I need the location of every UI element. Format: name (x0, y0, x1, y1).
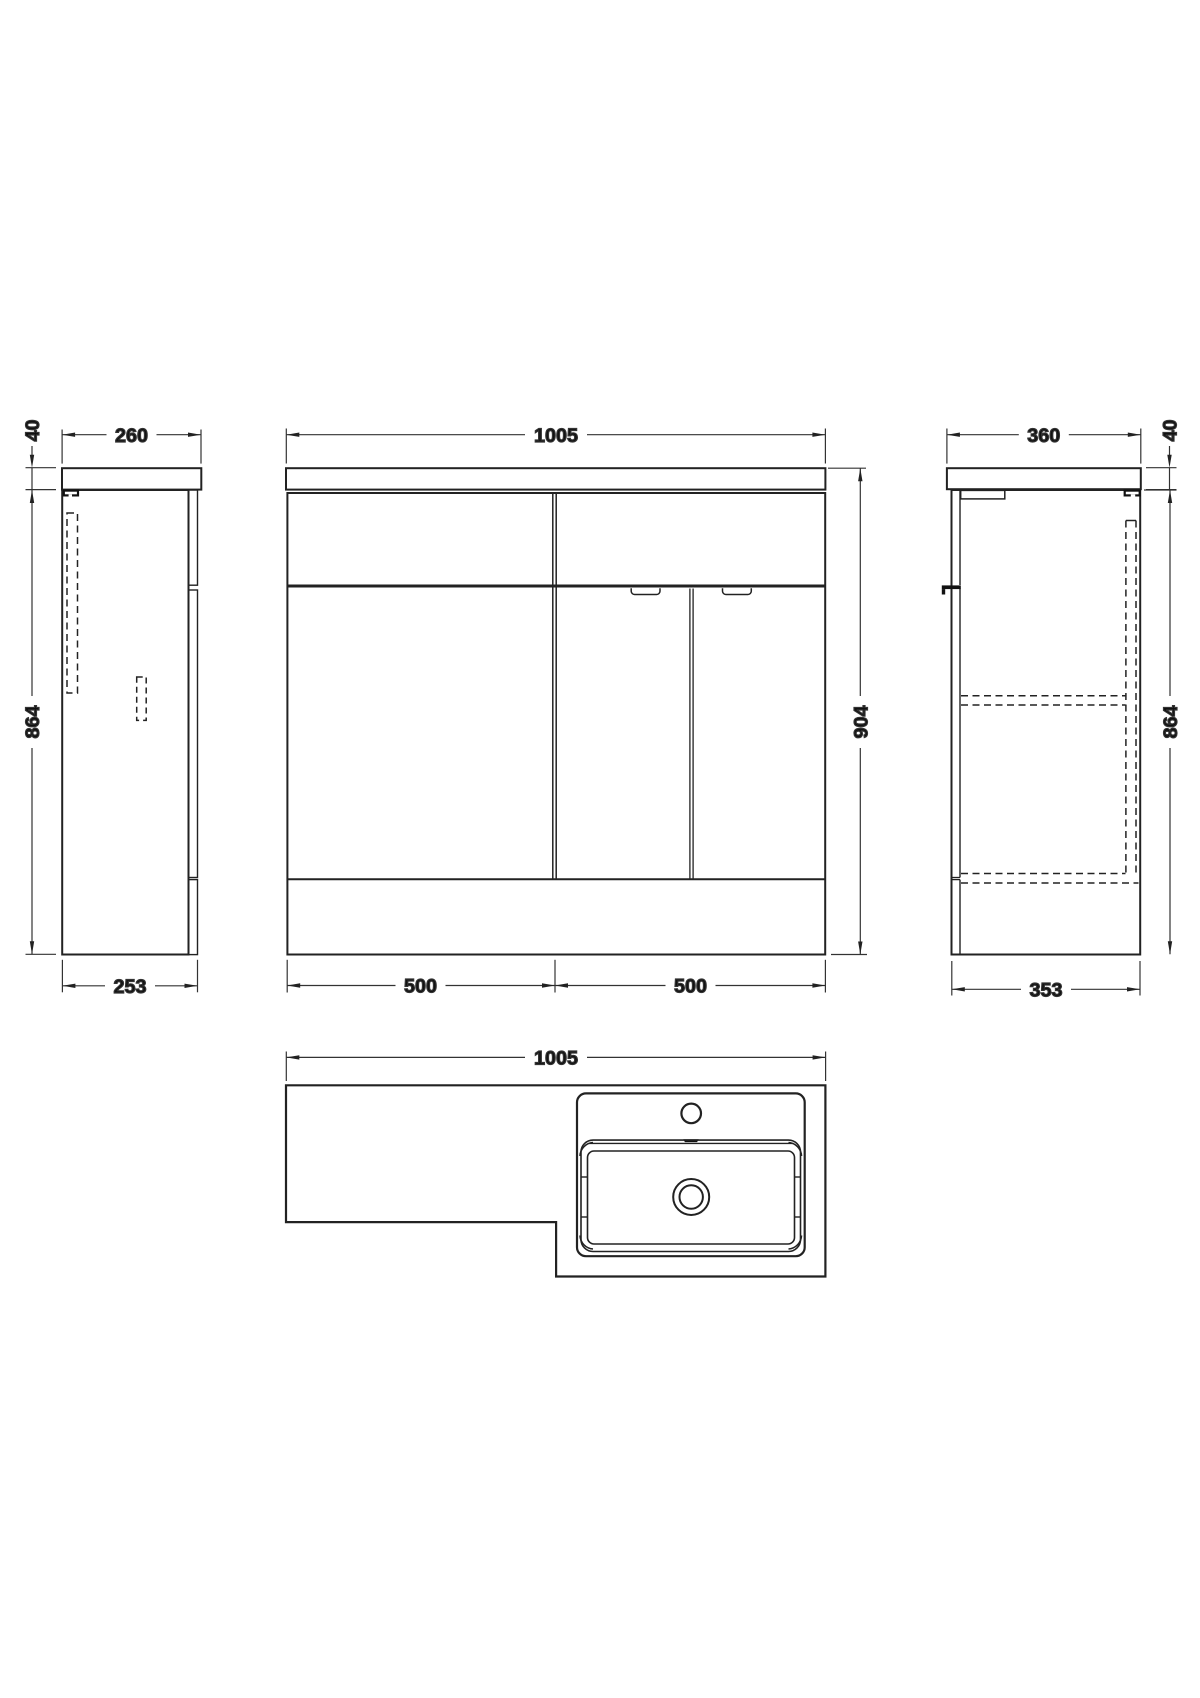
svg-text:904: 904 (850, 705, 872, 738)
svg-text:40: 40 (22, 419, 44, 441)
svg-text:500: 500 (404, 976, 437, 998)
svg-text:40: 40 (1160, 419, 1182, 441)
svg-text:260: 260 (115, 425, 148, 447)
svg-text:253: 253 (113, 976, 146, 998)
svg-text:864: 864 (1160, 705, 1182, 738)
svg-text:864: 864 (22, 705, 44, 738)
svg-text:500: 500 (674, 976, 707, 998)
svg-text:1005: 1005 (534, 425, 578, 447)
svg-text:360: 360 (1027, 425, 1060, 447)
svg-text:1005: 1005 (534, 1048, 578, 1070)
svg-text:353: 353 (1029, 980, 1062, 1002)
